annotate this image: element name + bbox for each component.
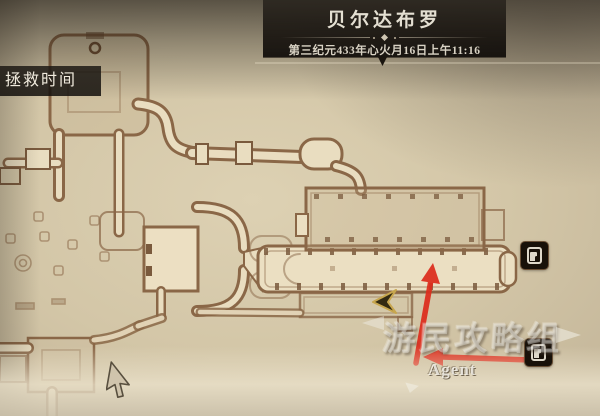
dungeon-map-canvas[interactable]	[0, 0, 600, 416]
save-time-label: 拯救时间	[5, 72, 77, 89]
location-title: 贝尔达布罗	[263, 5, 506, 32]
exit-door-marker[interactable]	[525, 339, 552, 366]
door-icon	[531, 344, 546, 361]
save-time-banner: 拯救时间	[0, 66, 101, 96]
exit-door-marker[interactable]	[521, 242, 548, 269]
location-banner: 贝尔达布罗 第三纪元433年心火月16日上午11:16	[263, 0, 506, 58]
door-icon	[527, 247, 542, 264]
game-map-screen: 贝尔达布罗 第三纪元433年心火月16日上午11:16 拯救时间 游民攻略组 A…	[0, 0, 600, 416]
mouse-pointer-icon	[106, 360, 138, 402]
banner-divider-ornament	[281, 34, 488, 41]
game-datetime: 第三纪元433年心火月16日上午11:16	[263, 42, 506, 58]
